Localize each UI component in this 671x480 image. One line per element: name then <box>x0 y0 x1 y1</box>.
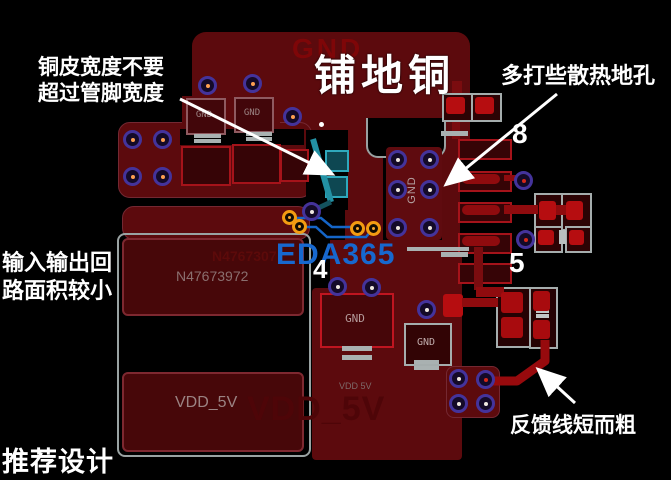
arrow-overlay <box>0 0 671 480</box>
arrow-feedback <box>540 371 575 403</box>
pcb-board-screenshot: N4767307 N47673972 VDD_5V GND GND GND <box>0 0 671 480</box>
arrow-copper-width <box>180 99 330 173</box>
arrow-thermal-vias <box>448 94 557 183</box>
